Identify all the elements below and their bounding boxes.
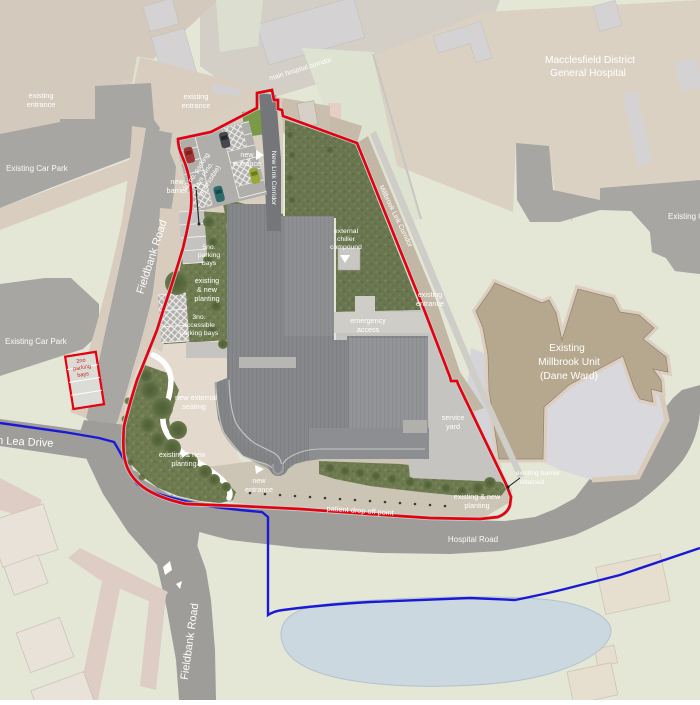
svg-text:& new: & new — [197, 285, 218, 294]
svg-text:compound: compound — [330, 244, 362, 251]
svg-text:Existing Car Park: Existing Car Park — [5, 337, 68, 346]
svg-text:entrance: entrance — [416, 299, 444, 308]
svg-text:entrance: entrance — [233, 159, 261, 168]
svg-text:new: new — [240, 150, 254, 159]
svg-text:entrance: entrance — [27, 100, 56, 109]
svg-text:accessible: accessible — [183, 322, 215, 329]
svg-text:existing & new: existing & new — [454, 492, 501, 501]
svg-text:existing: existing — [418, 290, 442, 299]
svg-text:Existing Car Park: Existing Car Park — [6, 164, 69, 173]
svg-text:new: new — [170, 177, 184, 186]
svg-text:new: new — [252, 476, 266, 485]
svg-text:parking bays: parking bays — [180, 330, 219, 337]
svg-text:yard: yard — [446, 422, 460, 431]
svg-text:planting: planting — [171, 459, 196, 468]
svg-text:Existing Car Park: Existing Car Park — [668, 212, 700, 221]
svg-text:service: service — [442, 413, 465, 422]
svg-text:external: external — [334, 228, 359, 235]
svg-text:entrance: entrance — [245, 485, 273, 494]
svg-text:existing: existing — [28, 91, 53, 100]
svg-text:parking: parking — [198, 252, 221, 259]
svg-text:Existing: Existing — [549, 343, 585, 354]
svg-text:new external: new external — [175, 393, 217, 402]
svg-text:existing & new: existing & new — [159, 450, 206, 459]
svg-text:Hospital Road: Hospital Road — [448, 535, 498, 544]
svg-text:seating: seating — [182, 402, 206, 411]
svg-text:5no.: 5no. — [202, 244, 215, 251]
svg-text:retained: retained — [520, 479, 545, 486]
svg-text:existing: existing — [195, 276, 219, 285]
svg-text:New Link Corridor: New Link Corridor — [270, 151, 277, 206]
svg-text:Millbrook Unit: Millbrook Unit — [538, 357, 600, 368]
svg-text:(Dane Ward): (Dane Ward) — [540, 371, 598, 382]
svg-text:General Hospital: General Hospital — [550, 68, 626, 79]
svg-text:access: access — [357, 325, 380, 334]
svg-text:planting: planting — [194, 294, 219, 303]
svg-text:Macclesfield District: Macclesfield District — [545, 55, 635, 66]
svg-text:entrance: entrance — [182, 101, 211, 110]
svg-text:existing: existing — [183, 92, 208, 101]
svg-text:chiller: chiller — [337, 236, 355, 243]
svg-text:existing barrier: existing barrier — [516, 470, 561, 477]
svg-text:3no.: 3no. — [192, 314, 205, 321]
svg-text:planting: planting — [464, 501, 489, 510]
svg-text:emergency: emergency — [350, 316, 386, 325]
svg-text:bays: bays — [202, 260, 217, 267]
